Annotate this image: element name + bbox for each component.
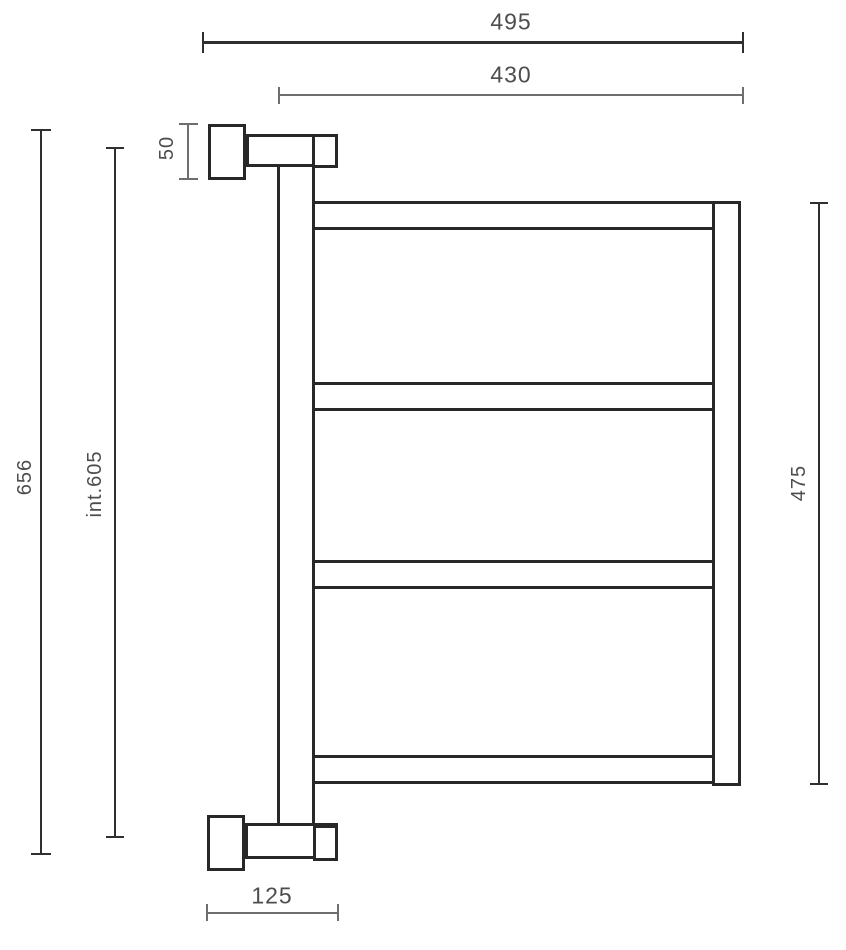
dim-body-height-line <box>818 203 820 785</box>
dim-bracket-height-label: 50 <box>157 136 177 160</box>
towel-rail-1 <box>312 201 715 230</box>
dimension-tick <box>202 32 204 53</box>
dim-bracket-height-line <box>187 124 189 180</box>
dimension-tick <box>106 836 124 838</box>
bottom-wall-plate <box>207 815 245 871</box>
dimension-tick <box>278 87 280 104</box>
dim-inner-width-label: 430 <box>490 64 531 87</box>
towel-rail-2 <box>312 382 715 411</box>
right-collector-bar <box>712 201 741 786</box>
dim-bracket-depth-label: 125 <box>251 885 292 908</box>
wall-column-tube <box>277 166 315 826</box>
dimension-tick <box>742 87 744 104</box>
dim-overall-width-line <box>203 41 744 44</box>
top-bracket-cap <box>312 134 338 168</box>
dimension-tick <box>742 32 744 53</box>
dimension-tick <box>106 147 124 149</box>
dim-overall-height-label: 656 <box>15 459 35 495</box>
dimension-tick <box>810 783 828 785</box>
technical-drawing-canvas: 495 430 50 656 int.605 475 125 <box>0 0 846 950</box>
towel-rail-4 <box>312 755 715 784</box>
dimension-tick <box>179 178 198 180</box>
top-wall-plate <box>208 124 246 180</box>
dim-overall-height-line <box>40 130 42 855</box>
bottom-bracket-cap <box>313 825 338 861</box>
dim-overall-width-label: 495 <box>490 11 531 34</box>
dimension-tick <box>810 202 828 204</box>
dimension-tick <box>206 904 208 921</box>
dim-bracket-depth-line <box>207 912 338 914</box>
towel-rail-3 <box>312 560 715 589</box>
dimension-tick <box>31 853 51 855</box>
dim-body-height-label: 475 <box>789 465 809 501</box>
dim-internal-height-label: int.605 <box>85 450 105 517</box>
dimension-tick <box>31 129 51 131</box>
dimension-tick <box>179 123 198 125</box>
dim-internal-height-line <box>114 148 116 838</box>
dim-inner-width-line <box>279 94 744 96</box>
dimension-tick <box>337 904 339 921</box>
